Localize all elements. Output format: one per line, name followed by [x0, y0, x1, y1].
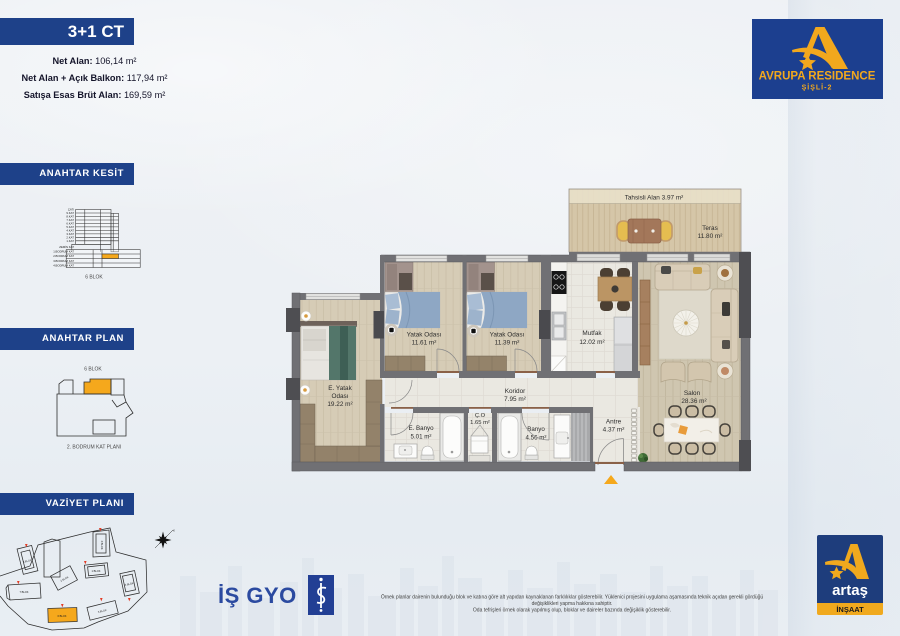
svg-text:11.80 m²: 11.80 m²	[698, 233, 723, 240]
svg-text:12.02 m²: 12.02 m²	[579, 339, 604, 346]
svg-text:1.65 m²: 1.65 m²	[470, 420, 490, 426]
svg-text:7.95 m²: 7.95 m²	[504, 396, 526, 403]
svg-text:4.37 m²: 4.37 m²	[603, 427, 625, 434]
svg-text:AVRUPA RESIDENCE: AVRUPA RESIDENCE	[759, 71, 876, 83]
svg-text:11.61 m²: 11.61 m²	[412, 340, 437, 347]
svg-text:2.BODRUM KAT: 2.BODRUM KAT	[53, 254, 74, 258]
svg-text:ZEMİN KAT: ZEMİN KAT	[59, 244, 74, 249]
svg-text:1.BODRUM KAT: 1.BODRUM KAT	[53, 250, 74, 254]
svg-text:Koridor: Koridor	[505, 388, 526, 395]
svg-text:Antre: Antre	[606, 419, 622, 426]
svg-text:artaş: artaş	[832, 582, 868, 599]
svg-text:5.01 m²: 5.01 m²	[411, 434, 432, 441]
svg-text:6 BLOK: 6 BLOK	[124, 581, 134, 587]
svg-text:Yatak Odası: Yatak Odası	[407, 332, 442, 339]
svg-text:6 BLOK: 6 BLOK	[85, 275, 103, 281]
svg-text:Ç.O: Ç.O	[475, 413, 486, 419]
svg-text:Mutfak: Mutfak	[582, 330, 602, 337]
svg-text:Teras: Teras	[702, 225, 718, 232]
svg-text:5 BLOK: 5 BLOK	[97, 608, 107, 614]
svg-text:4 BLOK: 4 BLOK	[100, 540, 104, 549]
svg-text:Odası: Odası	[331, 393, 348, 400]
svg-text:Yatak Odası: Yatak Odası	[490, 332, 525, 339]
svg-text:2 BLOK: 2 BLOK	[60, 575, 70, 583]
svg-text:28.36 m²: 28.36 m²	[681, 398, 706, 405]
svg-text:K: K	[173, 529, 175, 533]
svg-text:2. BODRUM KAT PLANI: 2. BODRUM KAT PLANI	[67, 445, 121, 451]
svg-text:7 BLOK: 7 BLOK	[19, 590, 28, 594]
svg-text:11.39 m²: 11.39 m²	[495, 340, 520, 347]
svg-text:4.BODRUM KAT: 4.BODRUM KAT	[53, 264, 74, 268]
svg-text:4.56 m²: 4.56 m²	[526, 435, 547, 442]
svg-text:1 BLOK: 1 BLOK	[91, 569, 100, 573]
svg-text:ŞİŞLİ-2: ŞİŞLİ-2	[802, 84, 833, 92]
svg-text:Tahsisli Alan 3.97 m²: Tahsisli Alan 3.97 m²	[625, 195, 684, 202]
svg-text:E. Yatak: E. Yatak	[328, 385, 352, 392]
svg-text:19.22 m²: 19.22 m²	[327, 401, 352, 408]
svg-text:3.BODRUM KAT: 3.BODRUM KAT	[53, 259, 74, 263]
svg-text:E. Banyo: E. Banyo	[408, 425, 434, 432]
svg-text:6 BLOK: 6 BLOK	[57, 614, 66, 618]
svg-text:Salon: Salon	[684, 390, 701, 397]
svg-text:1.KAT: 1.KAT	[66, 239, 74, 243]
svg-text:6 BLOK: 6 BLOK	[84, 367, 102, 373]
svg-text:İNŞAAT: İNŞAAT	[836, 605, 864, 614]
